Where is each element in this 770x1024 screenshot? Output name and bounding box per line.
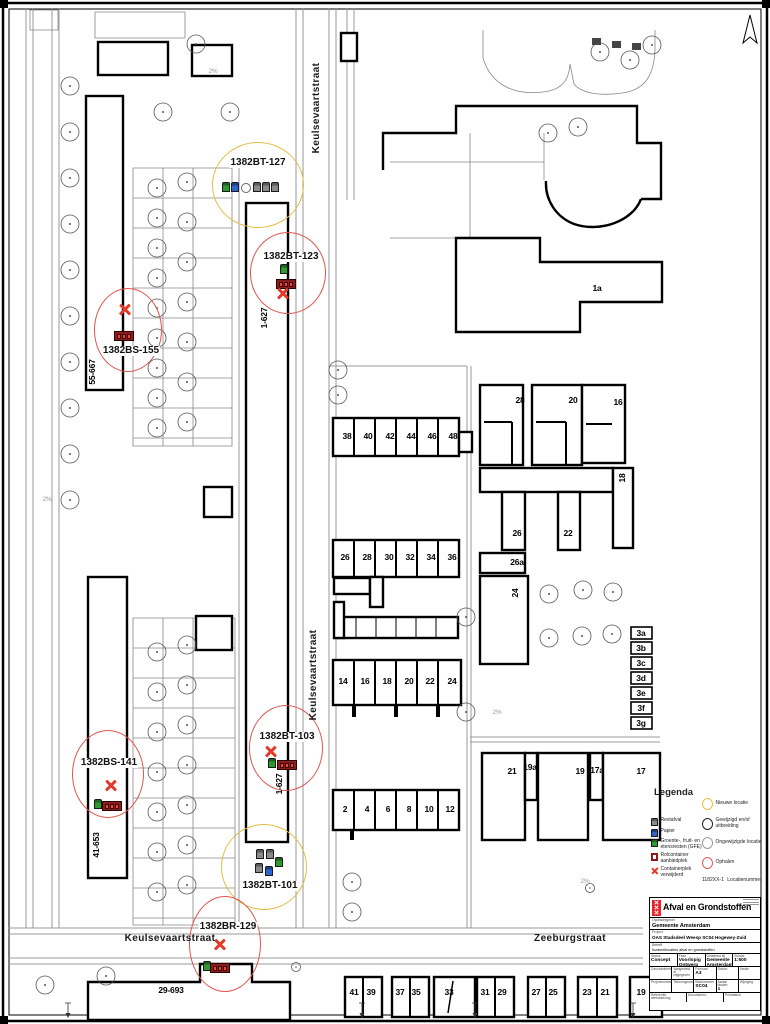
subject-row: Betreft Inzamellocaties afval en grondst…: [650, 943, 760, 954]
legend-waste-item: Containerplek verwijderd: [651, 867, 706, 879]
title-block-field: Tekeningnummer: [672, 980, 694, 992]
status-circle-icon: [702, 857, 713, 869]
status-circle-icon: [702, 798, 713, 810]
legend-title: Legenda: [654, 788, 693, 798]
title-block-field: Schaal1:500: [733, 954, 760, 966]
title-block-field: Documentnr.: [687, 993, 724, 1002]
waste-type-icon: [651, 867, 658, 874]
title-block-field: Referentie werktekening: [650, 993, 687, 1002]
title-block-grid: StatusConceptFaseVoorlopig OntwerpGeteke…: [650, 954, 760, 1002]
title-block-field: Getekend bijGemeente Amsterdam: [706, 954, 734, 966]
waste-type-icon: [651, 839, 658, 847]
status-circle-icon: [702, 837, 713, 849]
title-block-field: Aantal bladen1: [717, 980, 739, 992]
title-block-field: Printdatum: [724, 993, 760, 1002]
legend-item-label: Papier: [661, 829, 675, 835]
title-block-field: Versie: [739, 967, 760, 979]
subject-value: Inzamellocaties afval en grondstoffen: [652, 948, 758, 952]
legend-item-label: Rolcontainer aanbiedplek: [661, 853, 707, 865]
title-block-field: StatusConcept: [650, 954, 678, 966]
legend: Legenda Restafval Papier Groente-, fruit…: [650, 786, 764, 902]
title-block-field: Wijziging: [739, 980, 760, 992]
legend-item-label: Groente-, fruit- en etensresten (GFE): [661, 839, 707, 851]
legend-waste-item: Papier: [651, 829, 706, 837]
legend-status-item: Ophalen: [702, 857, 764, 869]
legend-item-label: Ongewijzigde locatie: [716, 840, 762, 846]
legend-item-label: Containerplek verwijderd: [661, 867, 707, 879]
title-block-field: FormaatA3: [694, 967, 716, 979]
legend-item-label: Restafval: [661, 818, 682, 824]
legend-status-item: Nieuwe locatie: [702, 798, 764, 810]
title-block-header: Afval en Grondstoffen: [650, 898, 760, 918]
small-structures: [592, 38, 641, 50]
drawing-title: Afval en Grondstoffen: [663, 903, 751, 912]
title-block-field: Datum: [717, 967, 739, 979]
location-number-label: Locatienummer: [727, 877, 761, 883]
legend-status-list: Nieuwe locatie Gewijzigd en/of uitbreidi…: [702, 798, 764, 876]
legend-waste-item: Restafval: [651, 818, 706, 826]
title-block-field: Projectnummer: [650, 980, 672, 992]
amsterdam-logo: [652, 900, 661, 916]
waste-type-icon: [651, 818, 658, 826]
legend-location-number: 1182XX-1 Locatienummer: [702, 878, 762, 883]
title-block-field: BladnummerSC04: [694, 980, 716, 992]
title-block-field: FaseVoorlopig Ontwerp: [678, 954, 706, 966]
location-number-example: 1182XX-1: [702, 877, 724, 883]
legend-status-item: Ongewijzigde locatie: [702, 837, 764, 849]
project-row: Project OAS Stadsdeel Weesp SC04 Hogewey…: [650, 930, 760, 943]
status-circle-icon: [702, 818, 713, 830]
north-arrow-icon: [743, 15, 757, 43]
title-block-field: Vastgesteld of vrijgegeven: [672, 967, 694, 979]
buildings: [86, 33, 662, 1020]
waste-type-icon: [651, 853, 658, 861]
legend-waste-list: Restafval Papier Groente-, fruit- en ete…: [651, 818, 706, 881]
map-sheet: 1382BT-127 1382BT-123 1382BS-155 1382BS-…: [0, 0, 770, 1024]
client-row: Opdrachtgever Gemeente Amsterdam: [650, 918, 760, 930]
legend-item-label: Nieuwe locatie: [716, 801, 749, 807]
title-block: Afval en Grondstoffen Opdrachtgever Geme…: [649, 897, 761, 1011]
client-value: Gemeente Amsterdam: [652, 923, 758, 929]
waste-type-icon: [651, 829, 658, 837]
legend-waste-item: Groente-, fruit- en etensresten (GFE): [651, 839, 706, 851]
legend-status-item: Gewijzigd en/of uitbreiding: [702, 818, 764, 830]
legend-item-label: Gewijzigd en/of uitbreiding: [716, 818, 765, 830]
stamp: [743, 899, 759, 907]
title-block-field: Gecontroleerd: [650, 967, 672, 979]
legend-item-label: Ophalen: [716, 860, 735, 866]
legend-waste-item: Rolcontainer aanbiedplek: [651, 853, 706, 865]
project-value: OAS Stadsdeel Weesp SC04 Hogewey-Zuid: [652, 935, 758, 940]
